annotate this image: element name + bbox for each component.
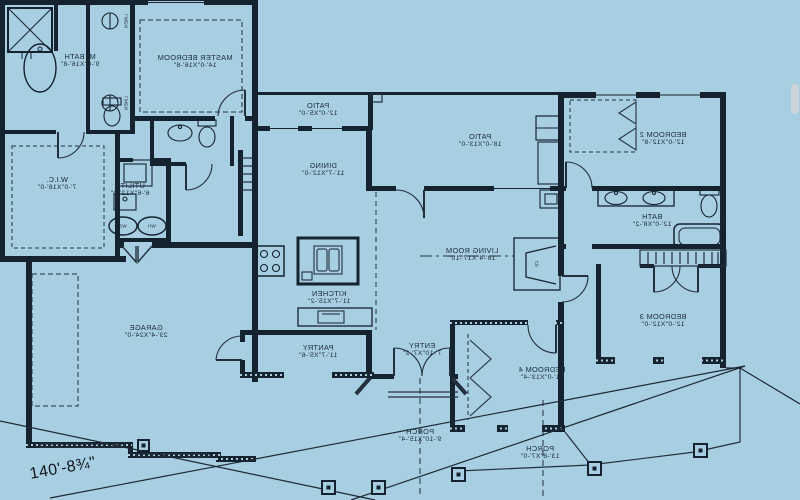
room-dims: 7'-10"X7'-2" [403, 350, 442, 358]
room-label-m-bath: M. BATH 9'-0"X16'-8" [61, 52, 100, 70]
room-name: MASTER BEDROOM [157, 53, 232, 62]
tub-faucet [38, 47, 42, 51]
room-dims: 11'-0"X13'-4" [518, 374, 565, 382]
door-pantry [216, 336, 242, 360]
room-dims: 7'-0"X16'-0" [38, 184, 77, 192]
room-name: KITCHEN [308, 289, 351, 298]
room-name: BEDROOM 4 [518, 365, 565, 374]
room-name: W.I.C. [38, 175, 77, 184]
bath-toilet [700, 189, 719, 217]
room-label-bedroom-2: BEDROOM 2 12'-0"X12'-8" [639, 130, 686, 148]
room-label-wic: W.I.C. 7'-0"X16'-0" [38, 175, 77, 193]
thin-lines-layer [40, 94, 740, 471]
room-label-entry: ENTRY 7'-10"X7'-2" [403, 341, 442, 359]
door-living-patio [396, 190, 424, 218]
wic-shelving-dashed [12, 146, 104, 248]
bedroom4-closet-bifold [470, 340, 491, 416]
room-label-utility: UTILITY 6'-6"X12'-0" [111, 181, 150, 199]
room-dims: 11'-7"X12'-0" [302, 170, 345, 178]
kitchen-counter [298, 308, 372, 326]
floor-plan: M. BATH 9'-0"X16'-8" MASTER BEDROOM 14'-… [0, 0, 800, 500]
door-bedroom3-french [654, 266, 698, 292]
room-label-bath: BATH 12'-0"X8'-2" [633, 212, 672, 230]
room-name: BATH [633, 212, 672, 221]
room-dims: 12'-0"X12'-0" [639, 321, 686, 329]
room-dims: 18'-4"X17'-10" [446, 255, 499, 263]
posts-layer [138, 440, 707, 494]
room-label-garage: GARAGE 23'-4"X24'-0" [124, 323, 167, 341]
room-name: GARAGE [124, 323, 167, 332]
room-dims: 12'-0"X5'-0" [299, 110, 338, 118]
scrollbar-thumb[interactable] [791, 84, 799, 114]
room-label-pantry: PANTRY 11'-7"X5'-6" [299, 343, 337, 361]
room-name: PORCH [398, 427, 441, 436]
room-name: DINING [302, 161, 345, 170]
room-name: PATIO [299, 101, 338, 110]
water-heater-label: WH [148, 224, 156, 229]
linen-label-2: LINEN [124, 96, 129, 110]
room-label-porch-right: PORCH 13'-8"X7'-0" [521, 444, 560, 462]
room-name: PATIO [458, 132, 501, 141]
kitchen-island [298, 238, 358, 284]
room-dims: 11'-7"X15'-2" [308, 298, 351, 306]
room-label-patio-small: PATIO 12'-0"X5'-0" [299, 101, 338, 119]
garage-bay-dashed [32, 274, 78, 406]
room-dims: 9'-10"X15'-4" [398, 436, 441, 444]
linen-closet-2 [102, 95, 118, 111]
floor-plan-svg [0, 0, 800, 500]
room-dims: 6'-6"X12'-0" [111, 190, 150, 198]
room-label-kitchen: KITCHEN 11'-7"X15'-2" [308, 289, 351, 307]
bath-vanity [598, 190, 674, 206]
hall-closet [640, 250, 726, 266]
hall-cabinet [538, 142, 560, 184]
door-bedroom4 [528, 325, 556, 353]
door-wic [58, 132, 84, 158]
room-dims: 14'-0"X16'-8" [157, 62, 232, 70]
room-label-master-bedroom: MASTER BEDROOM 14'-0"X16'-8" [157, 53, 232, 71]
room-name: BEDROOM 3 [639, 312, 686, 321]
room-dims: 13'-8"X7'-0" [521, 453, 560, 461]
linen-closet-1 [102, 13, 118, 29]
room-name: LIVING ROOM [446, 246, 499, 255]
room-label-patio-large: PATIO 18'-0"X13'-0" [458, 132, 501, 150]
walls-layer [0, 0, 726, 462]
linen-label-1: LINEN [124, 14, 129, 28]
door-garage-double [122, 246, 152, 262]
closet-shelf-hatch [648, 252, 718, 264]
room-dims: 18'-0"X13'-0" [458, 141, 501, 149]
door-bedroom2 [566, 162, 592, 188]
room-name: PORCH [521, 444, 560, 453]
door-hall [562, 276, 588, 302]
shower [8, 8, 52, 59]
room-dims: 12'-0"X8'-2" [633, 221, 672, 229]
room-name: PANTRY [299, 343, 337, 352]
room-name: M. BATH [61, 52, 100, 61]
range [256, 246, 284, 276]
room-dims: 12'-0"X12'-8" [639, 139, 686, 147]
property-line-3 [740, 368, 800, 404]
powder-sink [168, 125, 192, 141]
room-label-bedroom-4: BEDROOM 4 11'-0"X13'-4" [518, 365, 565, 383]
room-label-living-room: LIVING ROOM 18'-4"X17'-10" [446, 246, 499, 264]
room-label-dining: DINING 11'-7"X12'-0" [302, 161, 345, 179]
water-softener-label: WS [119, 224, 126, 229]
room-name: ENTRY [403, 341, 442, 350]
room-dims: 11'-7"X5'-6" [299, 352, 337, 360]
room-name: UTILITY [111, 181, 150, 190]
room-name: BEDROOM 2 [639, 130, 686, 139]
room-dims: 9'-0"X16'-8" [61, 61, 100, 69]
powder-toilet [198, 120, 216, 147]
fireplace-label: FP [535, 261, 540, 267]
room-label-bedroom-3: BEDROOM 3 12'-0"X12'-0" [639, 312, 686, 330]
room-label-porch-center: PORCH 9'-10"X15'-4" [398, 427, 441, 445]
bedroom2-closet-doors [619, 102, 636, 150]
door-powder [186, 164, 212, 190]
room-dims: 23'-4"X24'-0" [124, 332, 167, 340]
